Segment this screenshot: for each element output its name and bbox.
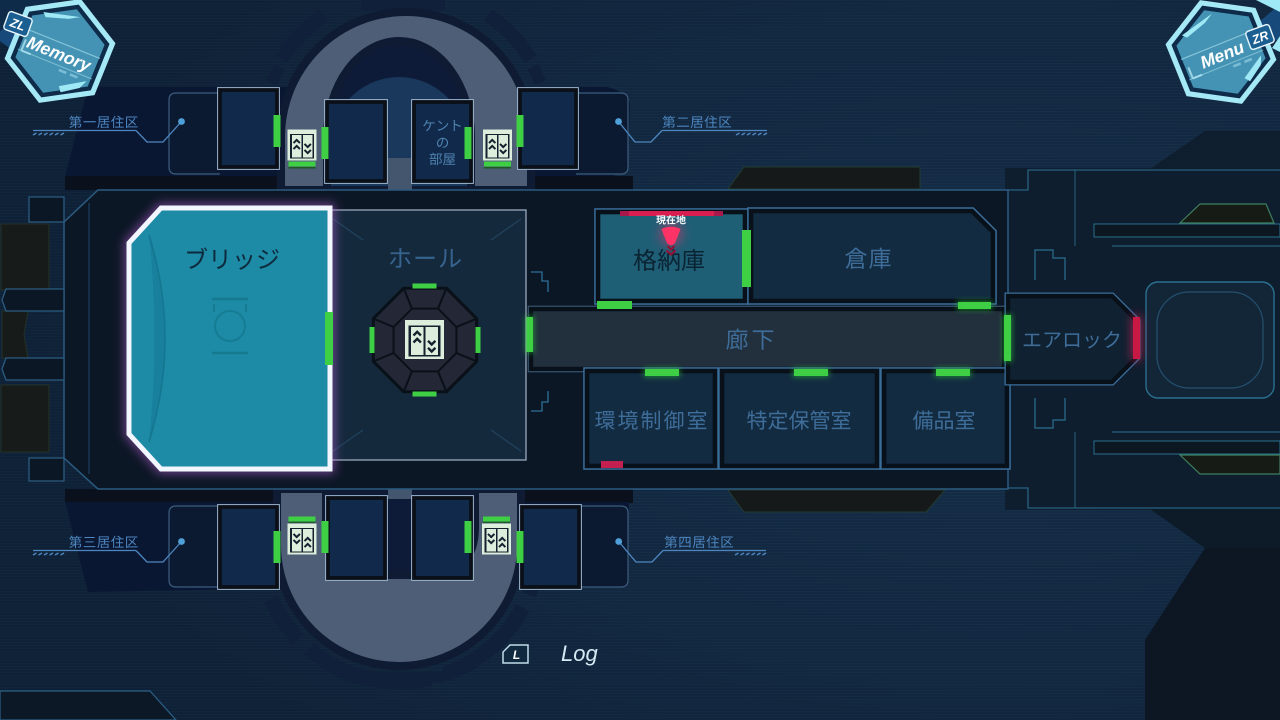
svg-text:Log: Log bbox=[561, 641, 598, 666]
svg-text:L: L bbox=[513, 648, 520, 662]
